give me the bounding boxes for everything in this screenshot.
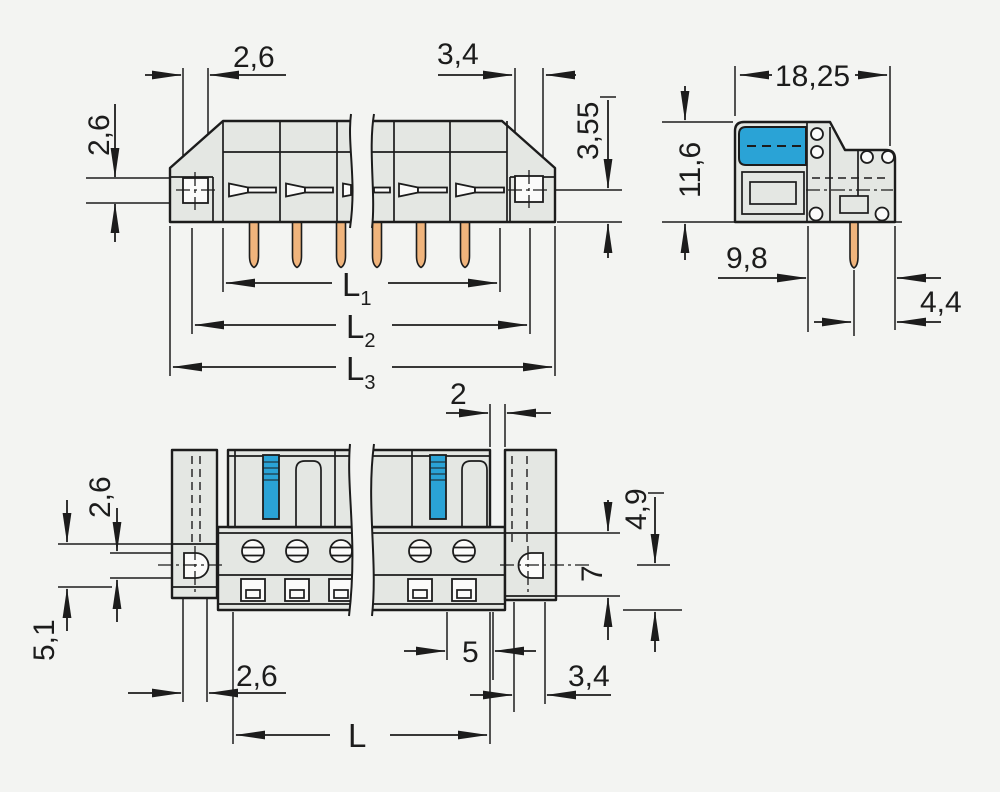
dim-label: L: [348, 717, 366, 754]
solder-pin: [461, 222, 470, 268]
end-profile-view: 18,25 11,6 9,8 4,4: [662, 60, 962, 336]
dim-side-l2: L2: [195, 308, 527, 352]
dim-profile-pin-edge: 4,4: [814, 286, 962, 322]
dim-label: 5,1: [28, 619, 61, 661]
dim-label: 5: [462, 636, 479, 669]
solder-pin: [293, 222, 302, 268]
dim-side-hole-width-left: 2,6: [145, 41, 286, 75]
dim-label: 4,9: [620, 488, 653, 530]
dim-label: 2: [450, 378, 467, 411]
dim-profile-height: 11,6: [674, 86, 707, 260]
dim-front-top-offset: 4,9: [620, 488, 655, 652]
solder-pin: [337, 222, 346, 268]
solder-pin: [250, 222, 259, 268]
dim-label: L3: [346, 350, 375, 394]
left-end-plate: [158, 450, 226, 598]
dim-profile-depth: 18,25: [740, 60, 887, 93]
dim-front-ear-left: 5,1: [28, 500, 67, 661]
dim-label: 7: [576, 565, 609, 582]
dim-side-l3: L3: [173, 350, 552, 394]
dim-label: 3,55: [572, 102, 605, 160]
connector-dimensional-drawing: 2,6 3,4 2,6 3,55 L1 L2: [0, 0, 1000, 792]
lever-slot: [263, 455, 279, 519]
dim-side-l1: L1: [226, 266, 497, 310]
solder-pin: [417, 222, 426, 268]
dim-front-length: L: [236, 717, 487, 754]
dim-side-hole-height: 2,6: [83, 104, 116, 242]
dim-profile-body-depth: 9,8: [718, 242, 941, 278]
solder-pin: [850, 222, 858, 268]
dim-label: 2,6: [233, 41, 275, 74]
dim-label: 3,4: [568, 660, 610, 693]
solder-pin: [373, 222, 382, 268]
solder-pins-side: [250, 222, 470, 268]
dim-label: 11,6: [674, 142, 707, 198]
dim-side-hole-width-right: 3,4: [437, 38, 576, 75]
break-line: [350, 114, 374, 228]
dim-front-ear-right: 7: [576, 500, 609, 640]
lever-slot: [430, 455, 446, 519]
side-view: 2,6 3,4 2,6 3,55 L1 L2: [83, 38, 622, 394]
dim-label: 2,6: [83, 114, 116, 156]
dim-front-end-gap: 2: [446, 378, 551, 413]
dim-front-pitch: 5: [404, 636, 536, 669]
dim-label: 2,6: [84, 476, 117, 518]
front-view: 2 2,6 5,1 2,6 5 3,4: [28, 378, 682, 754]
dim-label: 18,25: [775, 60, 850, 93]
dim-label: 9,8: [726, 242, 768, 275]
dim-label: L2: [346, 308, 375, 352]
dim-label: 3,4: [437, 38, 479, 71]
dim-front-hole-height: 2,6: [84, 476, 117, 622]
dim-label: L1: [342, 266, 371, 310]
dim-front-hole-width-right: 3,4: [470, 660, 611, 695]
dim-side-pin-offset: 3,55: [572, 97, 616, 258]
dim-label: 2,6: [236, 660, 278, 693]
dim-label: 4,4: [920, 286, 962, 319]
